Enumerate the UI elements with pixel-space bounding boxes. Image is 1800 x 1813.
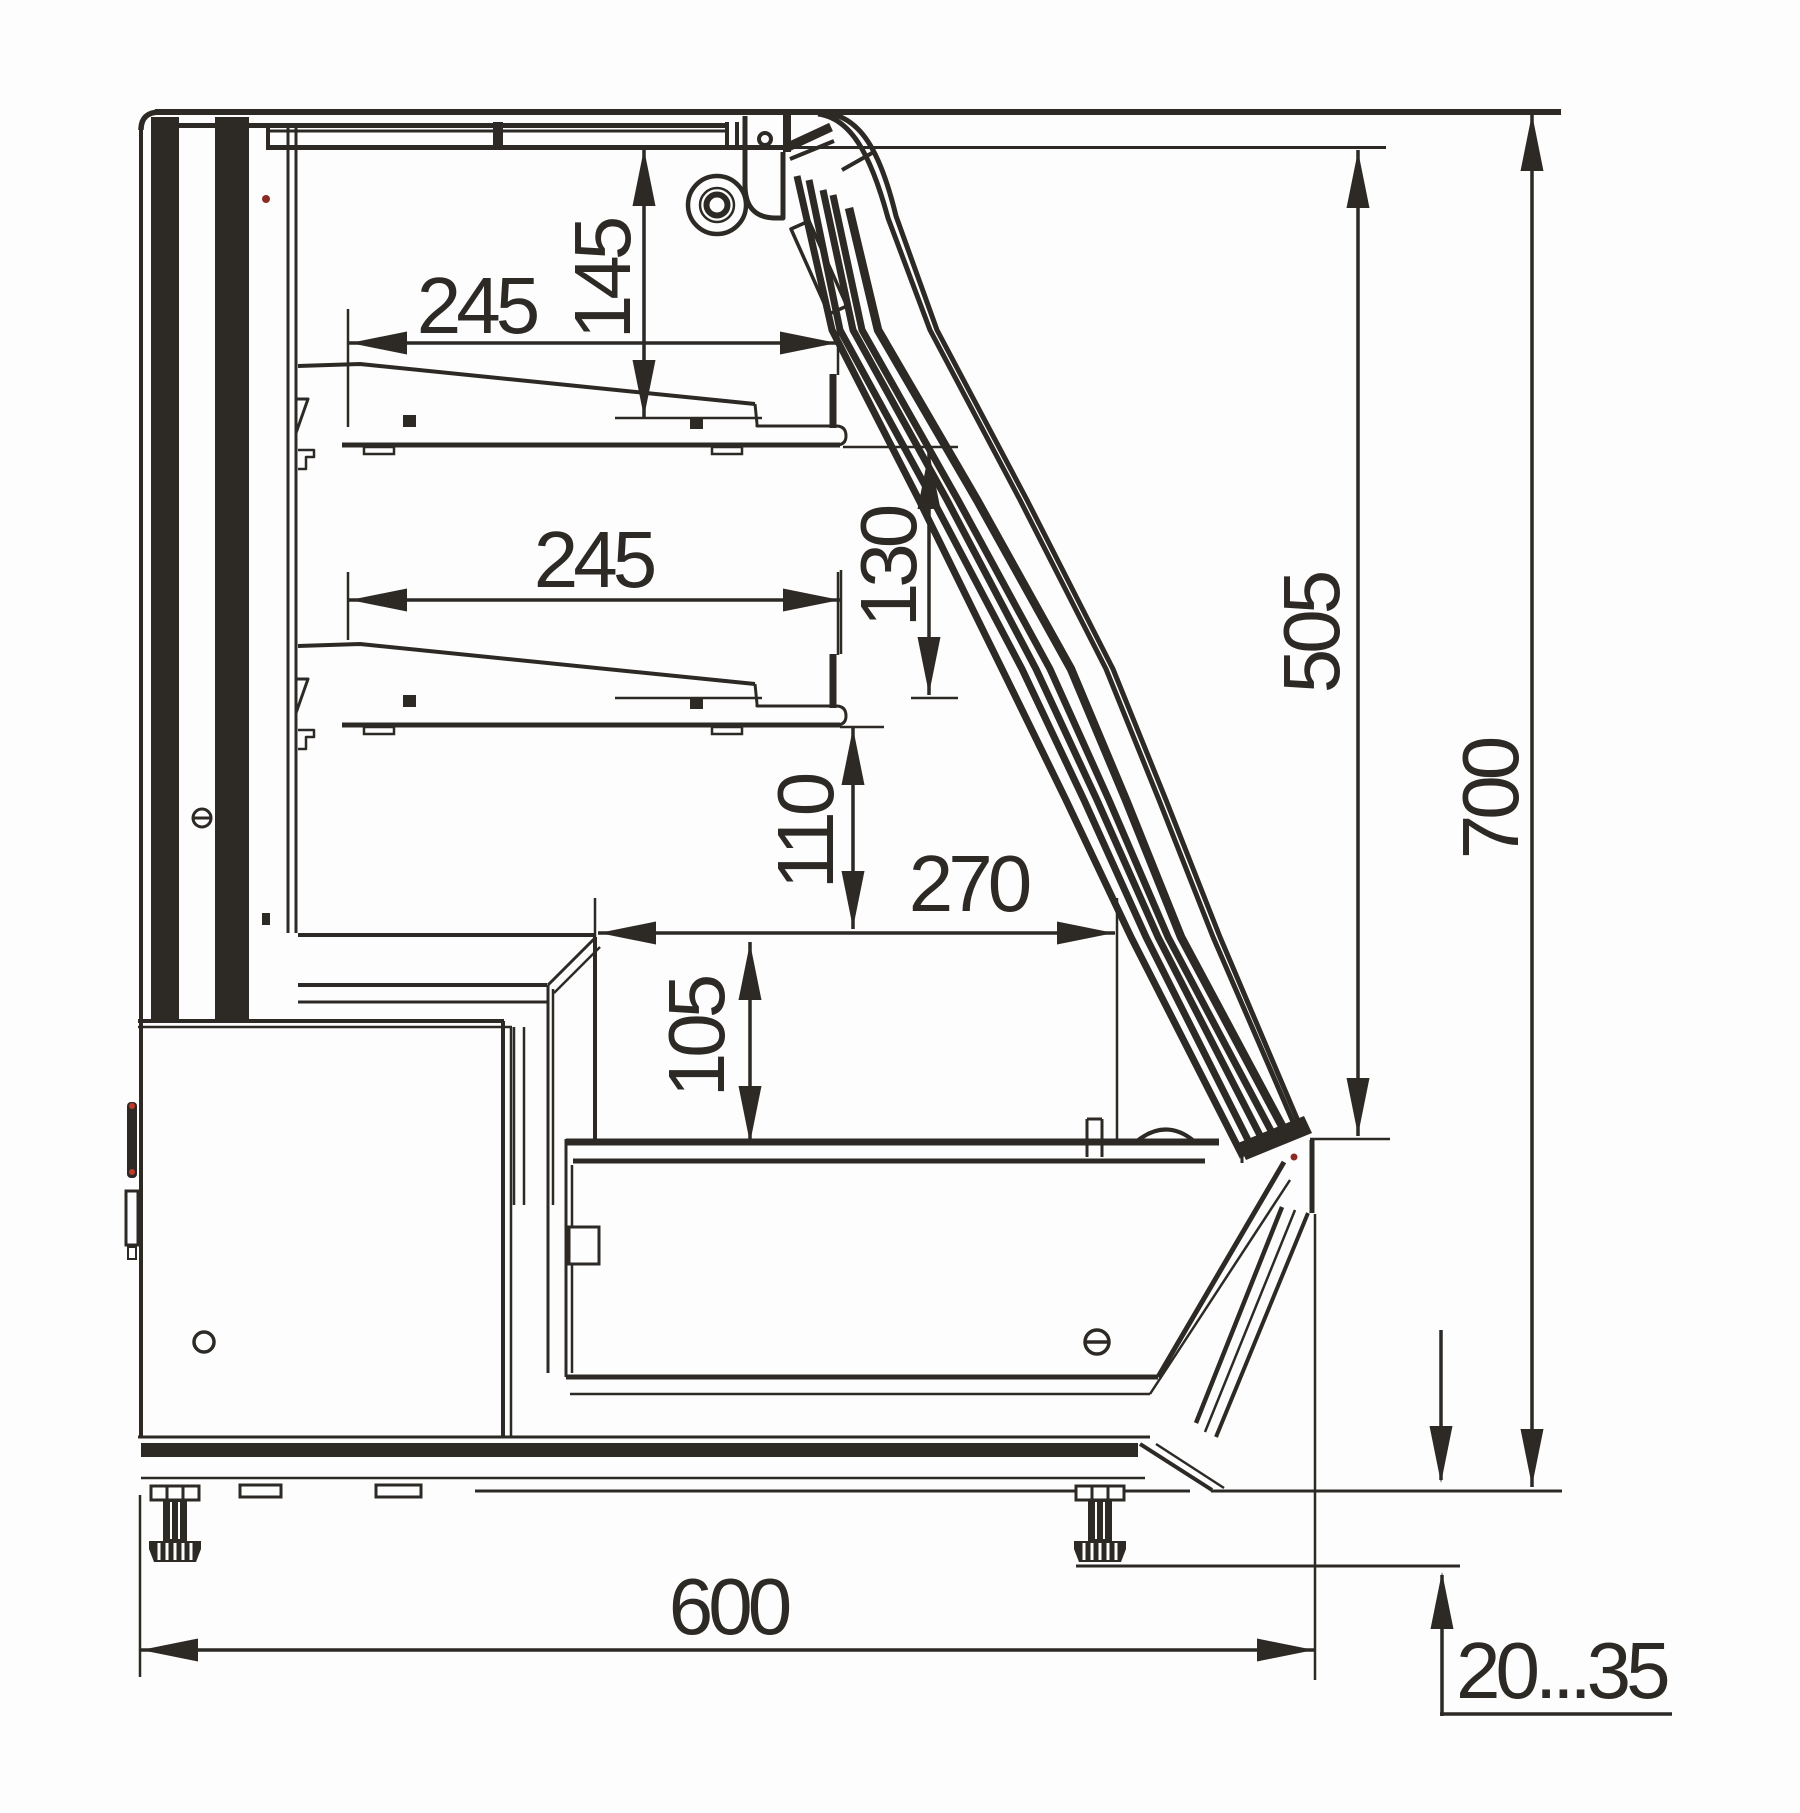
svg-text:270: 270 [909,839,1030,928]
svg-text:505: 505 [1267,572,1356,693]
svg-text:20...35: 20...35 [1456,1626,1668,1715]
svg-text:105: 105 [652,976,741,1097]
svg-text:245: 245 [534,515,655,604]
svg-text:110: 110 [761,774,850,889]
svg-text:700: 700 [1446,738,1535,859]
svg-text:245: 245 [417,261,538,350]
svg-text:600: 600 [669,1562,790,1651]
svg-text:130: 130 [844,506,933,627]
svg-text:145: 145 [558,218,647,339]
